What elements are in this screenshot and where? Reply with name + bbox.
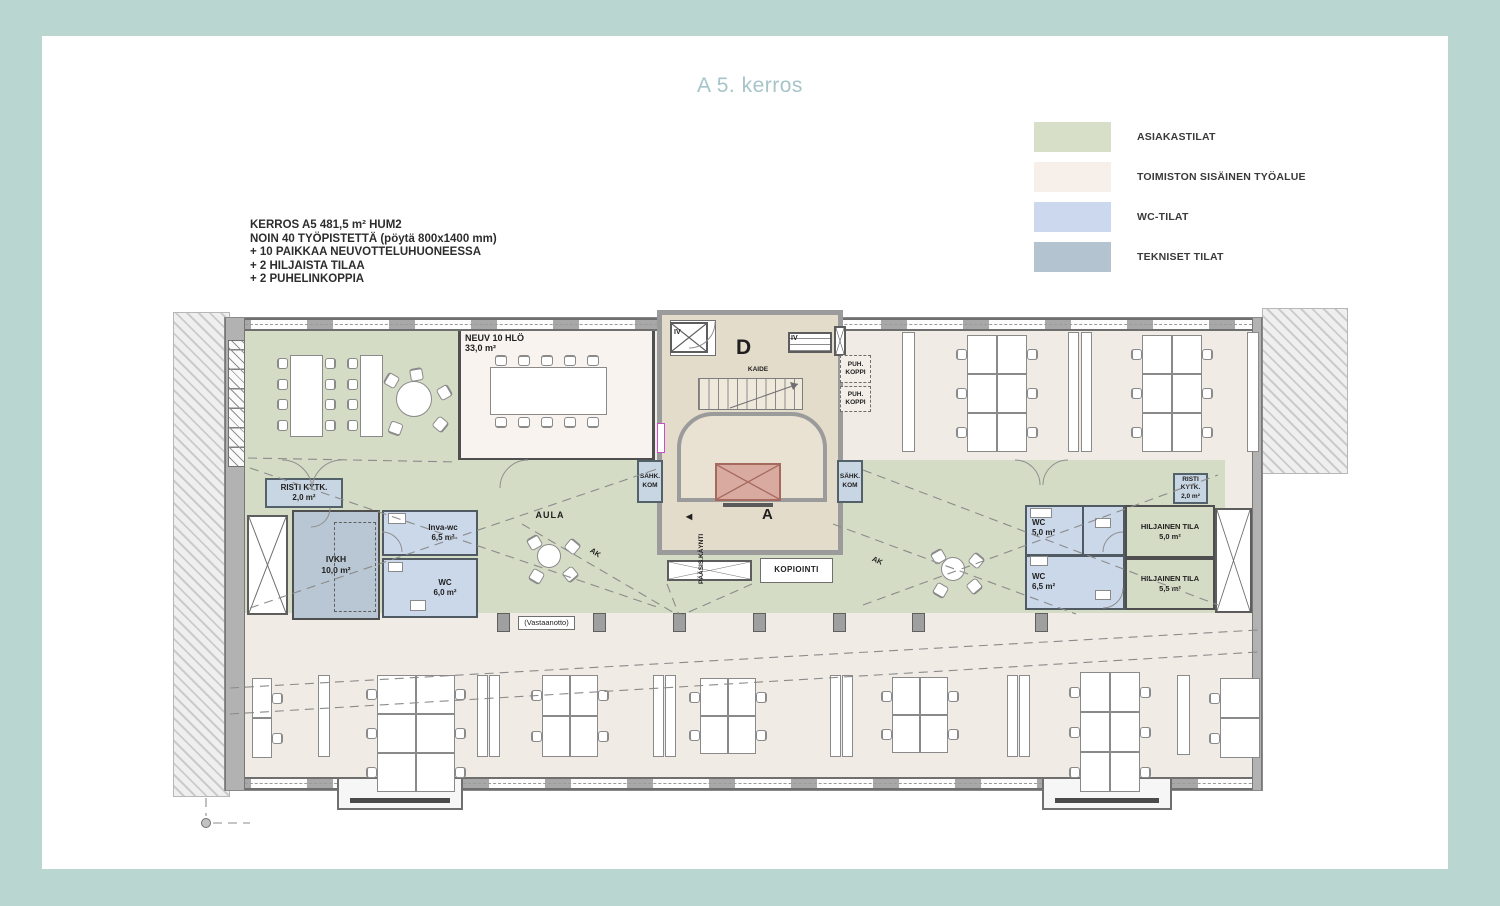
legend-item: ASIAKASTILAT xyxy=(1034,122,1364,152)
chair xyxy=(495,355,507,366)
chair xyxy=(383,372,401,390)
legend-label: ASIAKASTILAT xyxy=(1137,131,1216,143)
legend-swatch-toimisto xyxy=(1034,162,1111,192)
cabinet xyxy=(477,675,488,757)
cabinet xyxy=(1081,332,1092,452)
chair xyxy=(366,728,377,739)
legend-item: WC-TILAT xyxy=(1034,202,1364,232)
desk xyxy=(892,715,920,753)
chair xyxy=(587,355,599,366)
chair xyxy=(518,355,530,366)
chair xyxy=(387,420,404,437)
chair xyxy=(277,379,288,390)
desk xyxy=(997,374,1027,413)
desk xyxy=(570,716,598,757)
cabinet xyxy=(1177,675,1190,755)
cabinet xyxy=(653,675,664,757)
chair xyxy=(967,551,985,569)
chair xyxy=(564,417,576,428)
desk xyxy=(728,716,756,754)
chair xyxy=(347,399,358,410)
round-table xyxy=(396,381,432,417)
desk xyxy=(1080,672,1110,712)
chair xyxy=(1140,727,1151,738)
desk xyxy=(892,677,920,715)
cabinet xyxy=(830,675,841,757)
desk xyxy=(416,675,455,714)
desk xyxy=(570,675,598,716)
desk xyxy=(728,678,756,716)
desk xyxy=(1110,672,1140,712)
legend-swatch-tekniset xyxy=(1034,242,1111,272)
sink-fixture xyxy=(388,562,403,572)
sink-fixture xyxy=(410,600,426,611)
info-line: + 10 PAIKKAA NEUVOTTELUHUONEESSA xyxy=(250,246,497,260)
cabinet xyxy=(1007,675,1018,757)
info-line: + 2 HILJAISTA TILAA xyxy=(250,260,497,274)
chair xyxy=(689,730,700,741)
table xyxy=(360,355,383,437)
legend-label: WC-TILAT xyxy=(1137,211,1189,223)
chair xyxy=(948,691,959,702)
desk xyxy=(416,714,455,753)
desk xyxy=(377,753,416,792)
desk xyxy=(1080,752,1110,792)
round-table xyxy=(537,544,561,568)
round-table xyxy=(941,557,965,581)
cabinet xyxy=(489,675,500,757)
iv-right-label: IV xyxy=(791,335,798,342)
desk xyxy=(967,335,997,374)
desk xyxy=(1142,374,1172,413)
desk xyxy=(1080,712,1110,752)
chair xyxy=(948,729,959,740)
aula-label: AULA xyxy=(515,510,585,520)
desk xyxy=(1142,413,1172,452)
table xyxy=(290,355,323,437)
desk xyxy=(967,413,997,452)
floor-info: KERROS A5 481,5 m² HUM2 NOIN 40 TYÖPISTE… xyxy=(250,219,497,287)
desk xyxy=(252,678,272,718)
chair xyxy=(563,537,581,555)
chair xyxy=(541,417,553,428)
cabinet xyxy=(1068,332,1079,452)
desk xyxy=(377,675,416,714)
chair xyxy=(1209,733,1220,744)
entrance-arrow-icon: ◀ xyxy=(686,512,692,521)
chair xyxy=(1140,767,1151,778)
chair xyxy=(1140,687,1151,698)
desk xyxy=(920,677,948,715)
sink-fixture xyxy=(1095,518,1111,528)
legend-label: TEKNISET TILAT xyxy=(1137,251,1224,263)
chair xyxy=(495,417,507,428)
info-line: KERROS A5 481,5 m² HUM2 xyxy=(250,219,497,233)
chair xyxy=(956,349,967,360)
chair xyxy=(564,355,576,366)
desk xyxy=(1172,413,1202,452)
cabinet xyxy=(1247,332,1259,452)
chair xyxy=(1131,388,1142,399)
desk xyxy=(997,413,1027,452)
chair xyxy=(531,690,542,701)
stair-a-label: A xyxy=(762,506,773,523)
chair xyxy=(598,731,609,742)
table xyxy=(490,367,607,415)
floor-plan: PUH. KOPPI PUH. KOPPI SÄHK. KOM SÄHK. KO… xyxy=(170,300,1355,845)
chair xyxy=(881,691,892,702)
chair xyxy=(965,577,983,595)
chair xyxy=(325,420,336,431)
legend-item: TOIMISTON SISÄINEN TYÖALUE xyxy=(1034,162,1364,192)
desk xyxy=(997,335,1027,374)
desk xyxy=(1220,718,1260,758)
room-neuv-label: NEUV 10 HLÖ 33,0 m² xyxy=(465,333,524,353)
chair xyxy=(1069,767,1080,778)
chair xyxy=(366,767,377,778)
chair xyxy=(1131,427,1142,438)
cabinet xyxy=(1019,675,1030,757)
cabinet xyxy=(318,675,330,757)
furniture-layer xyxy=(170,300,1355,845)
chair xyxy=(528,568,546,586)
chair xyxy=(325,379,336,390)
chair xyxy=(272,733,283,744)
chair xyxy=(1027,388,1038,399)
chair xyxy=(518,417,530,428)
chair xyxy=(431,415,449,433)
page: { "page": { "title": "A 5. kerros", "bac… xyxy=(0,0,1500,906)
sink-fixture xyxy=(388,513,406,524)
chair xyxy=(1027,349,1038,360)
chair xyxy=(277,420,288,431)
chair xyxy=(455,728,466,739)
desk xyxy=(416,753,455,792)
info-line: NOIN 40 TYÖPISTETTÄ (pöytä 800x1400 mm) xyxy=(250,233,497,247)
page-title: A 5. kerros xyxy=(0,74,1500,98)
desk xyxy=(967,374,997,413)
desk xyxy=(252,718,272,758)
entrance-label: PÄÄSIS.KÄYNTI xyxy=(698,496,705,584)
chair xyxy=(436,384,454,402)
chair xyxy=(455,767,466,778)
chair xyxy=(325,358,336,369)
chair xyxy=(587,417,599,428)
chair xyxy=(756,692,767,703)
chair xyxy=(277,358,288,369)
desk xyxy=(542,716,570,757)
cabinet xyxy=(665,675,676,757)
legend-swatch-wc xyxy=(1034,202,1111,232)
chair xyxy=(561,565,579,583)
chair xyxy=(1069,727,1080,738)
desk xyxy=(542,675,570,716)
chair xyxy=(347,420,358,431)
sink-fixture xyxy=(1030,556,1048,566)
chair xyxy=(956,388,967,399)
chair xyxy=(881,729,892,740)
sink-fixture xyxy=(1030,508,1052,518)
chair xyxy=(1209,693,1220,704)
chair xyxy=(1027,427,1038,438)
sink-fixture xyxy=(1095,590,1111,600)
chair xyxy=(541,355,553,366)
info-line: + 2 PUHELINKOPPIA xyxy=(250,273,497,287)
chair xyxy=(1131,349,1142,360)
legend-label: TOIMISTON SISÄINEN TYÖALUE xyxy=(1137,171,1306,183)
desk xyxy=(700,716,728,754)
iv-left-label: IV xyxy=(674,329,681,336)
desk xyxy=(377,714,416,753)
desk xyxy=(700,678,728,716)
desk xyxy=(1142,335,1172,374)
chair xyxy=(531,731,542,742)
desk xyxy=(1220,678,1260,718)
chair xyxy=(325,399,336,410)
desk xyxy=(920,715,948,753)
legend-item: TEKNISET TILAT xyxy=(1034,242,1364,272)
cabinet xyxy=(842,675,853,757)
chair xyxy=(1069,687,1080,698)
chair xyxy=(347,379,358,390)
legend-swatch-asiakastilat xyxy=(1034,122,1111,152)
chair xyxy=(756,730,767,741)
chair xyxy=(272,693,283,704)
chair xyxy=(366,689,377,700)
kaide-label: KAIDE xyxy=(718,366,798,373)
desk xyxy=(1172,374,1202,413)
chair xyxy=(347,358,358,369)
desk xyxy=(1110,752,1140,792)
stair-d-label: D xyxy=(736,336,751,360)
chair xyxy=(689,692,700,703)
chair xyxy=(1202,349,1213,360)
chair xyxy=(1202,427,1213,438)
chair xyxy=(277,399,288,410)
desk xyxy=(1172,335,1202,374)
chair xyxy=(409,367,424,382)
chair xyxy=(1202,388,1213,399)
cabinet xyxy=(902,332,915,452)
chair xyxy=(932,582,950,600)
chair xyxy=(956,427,967,438)
chair xyxy=(455,689,466,700)
chair xyxy=(598,690,609,701)
desk xyxy=(1110,712,1140,752)
